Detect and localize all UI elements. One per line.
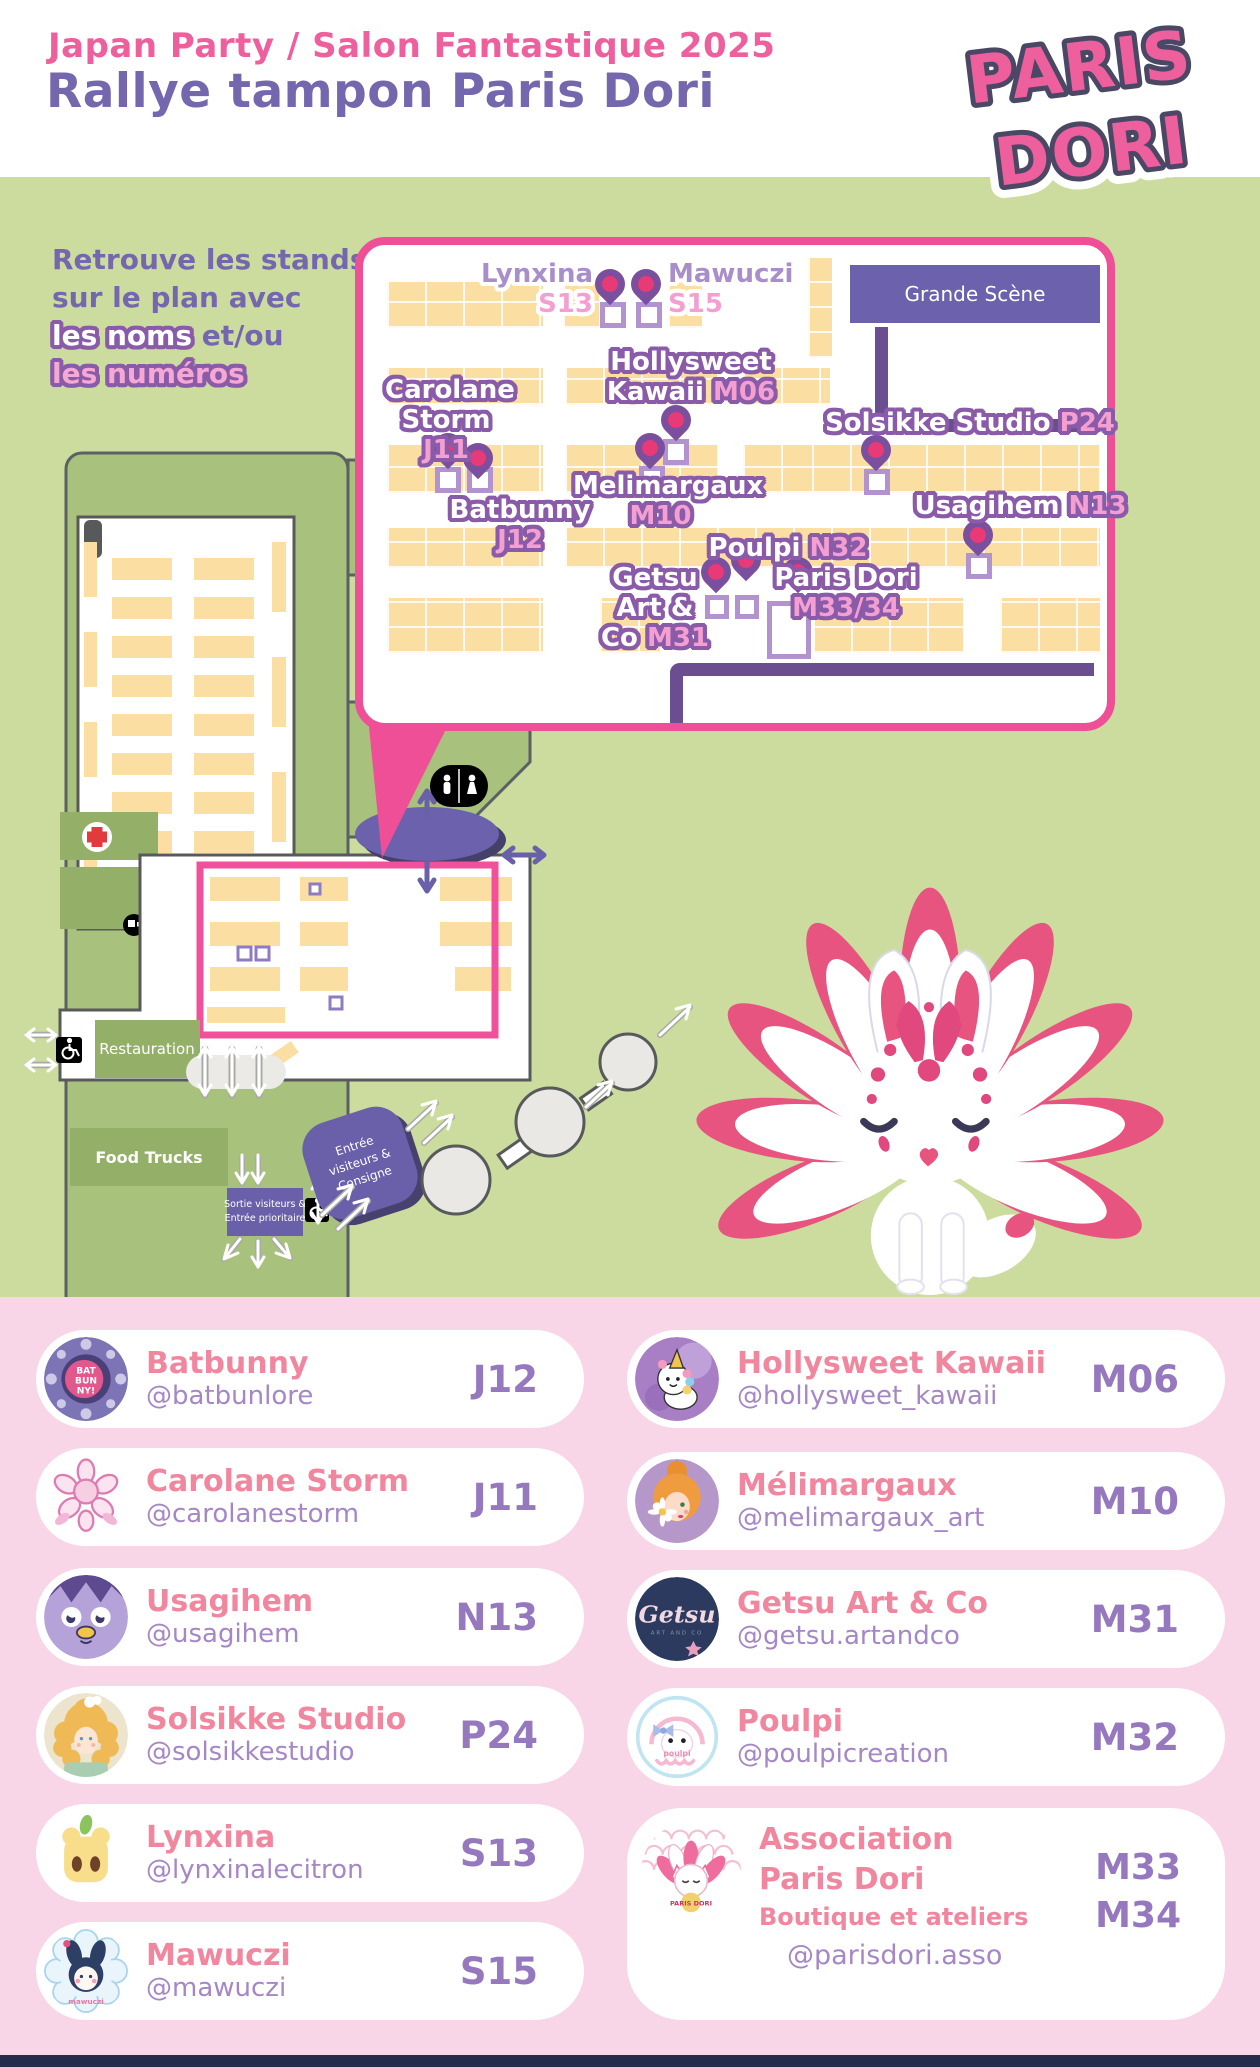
grande-scene-box: Grande Scène bbox=[850, 265, 1100, 323]
stand-number: M06 bbox=[1091, 1358, 1179, 1401]
stand-label-mawuczi: Mawuczi S15 bbox=[668, 259, 798, 319]
stands-zoom-callout: Grande Scène bbox=[355, 237, 1115, 731]
svg-text:Getsu: Getsu bbox=[639, 1601, 716, 1629]
poulpi-avatar: poulpi bbox=[635, 1695, 719, 1779]
hollysweet-avatar bbox=[635, 1337, 719, 1421]
stand-number: N13 bbox=[456, 1596, 538, 1639]
vendor-card-hollysweet: Hollysweet Kawaii@hollysweet_kawaii M06 bbox=[627, 1330, 1225, 1428]
svg-text:PARIS DORI: PARIS DORI bbox=[670, 1900, 712, 1908]
svg-text:Entrée prioritaire: Entrée prioritaire bbox=[225, 1213, 306, 1224]
vendor-card-paris-dori: PARIS DORI Association Paris Dori Boutiq… bbox=[627, 1808, 1225, 2020]
stand-numbers: M33 M34 bbox=[1095, 1844, 1181, 1940]
tent-circle bbox=[516, 1088, 584, 1156]
restauration-label: Restauration bbox=[99, 1040, 194, 1058]
usagihem-avatar bbox=[44, 1575, 128, 1659]
bottom-corridor-line bbox=[670, 663, 1094, 723]
bottom-border-bar bbox=[0, 2055, 1260, 2067]
stand-number: J12 bbox=[473, 1358, 538, 1401]
solsikke-avatar bbox=[44, 1693, 128, 1777]
mawuczi-avatar: mawuczi bbox=[44, 1929, 128, 2013]
stand-label-carolane: Carolane Storm J11 bbox=[385, 375, 507, 465]
event-title: Japan Party / Salon Fantastique 2025 bbox=[48, 26, 775, 66]
stand-label-hollysweet: Hollysweet Kawaii M06 bbox=[605, 347, 777, 407]
stand-number: M31 bbox=[1091, 1598, 1179, 1641]
svg-text:Sortie visiteurs &: Sortie visiteurs & bbox=[224, 1199, 306, 1210]
vendor-card-solsikke: Solsikke Studio@solsikkestudio P24 bbox=[36, 1686, 584, 1784]
vendor-card-carolane: Carolane Storm@carolanestorm J11 bbox=[36, 1448, 584, 1546]
vendor-card-usagihem: Usagihem@usagihem N13 bbox=[36, 1568, 584, 1666]
vendor-card-getsu: Getsu ART AND CO Getsu Art & Co@getsu.ar… bbox=[627, 1570, 1225, 1668]
location-pin-icon bbox=[625, 263, 667, 305]
svg-text:ART AND CO: ART AND CO bbox=[651, 1631, 703, 1637]
stand-number: P24 bbox=[459, 1714, 538, 1757]
toilets-icon-2 bbox=[430, 765, 488, 807]
tent-circle bbox=[422, 1146, 490, 1214]
vendor-card-poulpi: poulpi Poulpi@poulpicreation M32 bbox=[627, 1688, 1225, 1786]
venue-map-section: Retrouve les stands sur le plan avec les… bbox=[0, 177, 1260, 1297]
vendor-card-batbunny: BAT BUN NY! Batbunny@batbunlore J12 bbox=[36, 1330, 584, 1428]
kitsune-mascot bbox=[690, 807, 1170, 1297]
paris-dori-avatar: PARIS DORI bbox=[641, 1822, 741, 1922]
stand-label-melimargaux: Melimargaux M10 bbox=[573, 471, 748, 531]
lynxina-avatar bbox=[44, 1811, 128, 1895]
stand-number: S13 bbox=[460, 1832, 538, 1875]
food-trucks-label: Food Trucks bbox=[95, 1148, 202, 1167]
stand-number: M10 bbox=[1091, 1480, 1179, 1523]
stand-label-usagihem: Usagihem N13 bbox=[898, 491, 1143, 521]
melimargaux-avatar bbox=[635, 1459, 719, 1543]
stand-number: M32 bbox=[1091, 1716, 1179, 1759]
stand-label-poulpi: Poulpi N32 bbox=[688, 533, 888, 563]
getsu-avatar: Getsu ART AND CO bbox=[635, 1577, 719, 1661]
svg-text:mawuczi: mawuczi bbox=[68, 1997, 104, 2006]
exit-zone bbox=[227, 1188, 303, 1236]
page-title: Rallye tampon Paris Dori bbox=[46, 64, 715, 119]
svg-text:DORI: DORI bbox=[991, 101, 1193, 201]
stand-label-getsu: Getsu Art & Co M31 bbox=[595, 563, 715, 653]
svg-text:poulpi: poulpi bbox=[663, 1749, 690, 1758]
stand-number: J11 bbox=[473, 1476, 538, 1519]
paris-dori-logo: PARIS PARIS DORI DORI bbox=[930, 2, 1230, 222]
stand-label-solsikke: Solsikke Studio P24 bbox=[825, 408, 1115, 438]
stand-label-lynxina: Lynxina S13 bbox=[481, 259, 593, 319]
vendor-card-mawuczi: mawuczi Mawuczi@mawuczi S15 bbox=[36, 1922, 584, 2020]
svg-text:BUN: BUN bbox=[75, 1377, 97, 1387]
stand-label-parisdori: Paris Dori M33/34 bbox=[771, 563, 921, 623]
svg-text:BAT: BAT bbox=[76, 1367, 96, 1377]
vendor-card-lynxina: Lynxina@lynxinalecitron S13 bbox=[36, 1804, 584, 1902]
batbunny-avatar: BAT BUN NY! bbox=[44, 1337, 128, 1421]
vendor-card-melimargaux: Mélimargaux@melimargaux_art M10 bbox=[627, 1452, 1225, 1550]
stand-number: S15 bbox=[460, 1950, 538, 1993]
carolane-avatar bbox=[44, 1455, 128, 1539]
svg-text:NY!: NY! bbox=[77, 1387, 95, 1397]
vendor-list-section: BAT BUN NY! Batbunny@batbunlore J12 bbox=[0, 1297, 1260, 2055]
